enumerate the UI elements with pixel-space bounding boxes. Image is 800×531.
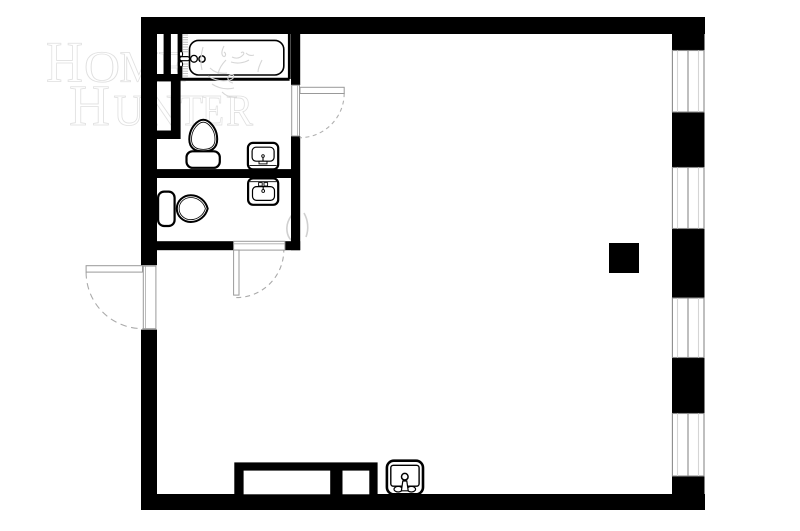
svg-text:H: H [69,73,110,138]
svg-text:R: R [226,86,254,135]
svg-text:U: U [114,86,145,135]
